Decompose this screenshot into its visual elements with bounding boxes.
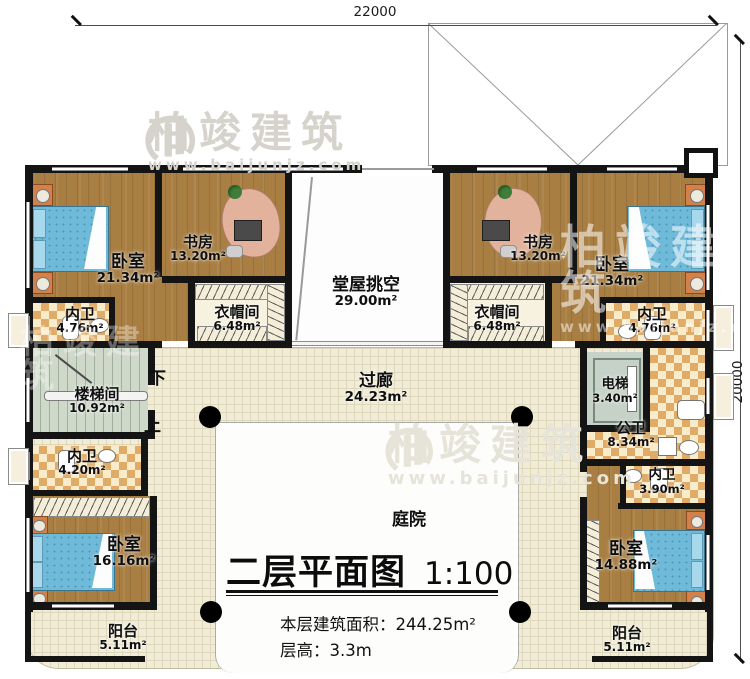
wall xyxy=(25,341,162,348)
window xyxy=(607,167,677,171)
room-label-public-bath: 公卫8.34m² xyxy=(607,420,654,449)
window xyxy=(52,167,128,171)
wall xyxy=(443,276,575,283)
wall xyxy=(618,503,712,509)
floor-height-note: 层高：3.3m xyxy=(280,637,372,661)
room-label-bath-mr: 内卫3.90m² xyxy=(639,468,684,495)
room-label-balcony-r: 阳台5.11m² xyxy=(603,625,650,654)
balcony-railing xyxy=(25,656,145,662)
room-label-bedroom-tl: 卧室21.34m² xyxy=(97,253,160,286)
room-label-courtyard: 庭院 xyxy=(392,511,426,529)
wall xyxy=(188,283,195,348)
nightstand xyxy=(685,272,707,294)
window xyxy=(477,167,547,171)
wall xyxy=(580,432,587,472)
room-label-study-r: 书房13.20m² xyxy=(510,234,566,263)
stairs-up-label: 上 xyxy=(144,411,161,436)
room-label-bedroom-tr: 卧室21.34m² xyxy=(581,256,644,289)
wall xyxy=(25,432,155,439)
dimension-top-value: 22000 xyxy=(335,4,415,20)
column xyxy=(200,601,222,623)
pillow xyxy=(691,533,703,560)
bay-window xyxy=(8,448,29,485)
room-label-bath-tr: 内卫4.76m² xyxy=(628,306,675,335)
room-label-closet-r: 衣帽间6.48m² xyxy=(473,304,520,333)
bay-window xyxy=(713,373,734,420)
plant xyxy=(498,185,512,199)
room-label-stairwell: 楼梯间10.92m² xyxy=(69,386,125,415)
room-label-corridor: 过廊24.23m² xyxy=(345,372,408,405)
wall xyxy=(600,297,606,341)
wardrobe-rack xyxy=(450,284,468,341)
watermark: 柏竣建筑 www.baijunjz.com xyxy=(148,112,365,173)
drawing-title: 二层平面图 1:100 xyxy=(226,544,513,595)
window xyxy=(26,378,30,422)
wall xyxy=(285,173,292,348)
plant xyxy=(228,185,242,199)
window xyxy=(26,518,30,592)
room-label-bath-tl: 内卫4.76m² xyxy=(56,306,103,335)
wall xyxy=(190,341,292,348)
wall xyxy=(25,490,148,496)
wall xyxy=(162,276,292,283)
room-label-bath-ml: 内卫4.20m² xyxy=(58,448,105,477)
wardrobe-rack xyxy=(33,497,150,517)
roof-chimney xyxy=(684,148,718,178)
wall xyxy=(545,283,552,348)
wall xyxy=(141,439,148,496)
builder-logo-icon xyxy=(148,112,194,168)
computer-monitor xyxy=(234,220,262,241)
floor-area-note: 本层建筑面积：244.25m² xyxy=(280,611,476,635)
wall xyxy=(109,297,115,341)
room-label-closet-l: 衣帽间6.48m² xyxy=(213,304,260,333)
wall xyxy=(443,173,450,348)
roof-outline xyxy=(428,23,728,166)
pillow xyxy=(33,240,46,269)
computer-monitor xyxy=(482,220,510,241)
hall-void-area xyxy=(292,176,443,341)
nightstand xyxy=(686,511,706,530)
pillow xyxy=(691,561,703,588)
toilet xyxy=(677,400,705,420)
balcony-railing xyxy=(707,610,713,662)
window xyxy=(26,202,30,288)
bay-window xyxy=(8,313,29,348)
drawing-scale: 1:100 xyxy=(424,556,513,592)
room-label-bedroom-br: 卧室14.88m² xyxy=(595,540,658,573)
wall xyxy=(443,341,547,348)
wardrobe-rack xyxy=(267,284,285,341)
wall xyxy=(580,347,587,432)
window xyxy=(706,378,710,414)
window xyxy=(608,604,672,608)
title-underline xyxy=(226,590,498,596)
window xyxy=(706,205,710,290)
void-balustrade xyxy=(292,341,443,346)
column xyxy=(511,406,533,428)
stairs-down-label: 下 xyxy=(149,364,166,389)
wall xyxy=(25,297,115,303)
balcony-railing xyxy=(592,656,712,662)
nightstand xyxy=(685,184,707,206)
nightstand xyxy=(31,184,53,206)
wall xyxy=(570,173,577,277)
room-label-study-l: 书房13.20m² xyxy=(170,234,226,263)
pillow xyxy=(691,240,704,269)
nightstand xyxy=(31,272,53,294)
window xyxy=(183,167,343,171)
pillow xyxy=(691,209,704,238)
column xyxy=(509,601,531,623)
floor-plan-canvas: 22000 20000 xyxy=(0,0,750,679)
sink xyxy=(679,440,699,455)
void-top-line xyxy=(362,168,434,170)
room-label-elevator: 电梯3.40m² xyxy=(592,377,637,404)
column xyxy=(199,406,221,428)
pillow xyxy=(33,209,46,238)
room-label-balcony-l: 阳台5.11m² xyxy=(99,623,146,652)
wall xyxy=(600,297,705,303)
balcony-railing xyxy=(25,610,31,662)
dimension-line-top xyxy=(75,25,716,26)
washer xyxy=(658,437,677,456)
window xyxy=(706,535,710,590)
window xyxy=(52,604,114,608)
bay-window xyxy=(713,305,734,351)
room-label-hall-void: 堂屋挑空29.00m² xyxy=(332,276,400,309)
room-label-bedroom-bl: 卧室16.16m² xyxy=(93,536,156,569)
wall xyxy=(587,459,712,466)
wall xyxy=(580,497,587,610)
drawing-title-text: 二层平面图 xyxy=(226,544,406,595)
chair xyxy=(226,245,243,258)
